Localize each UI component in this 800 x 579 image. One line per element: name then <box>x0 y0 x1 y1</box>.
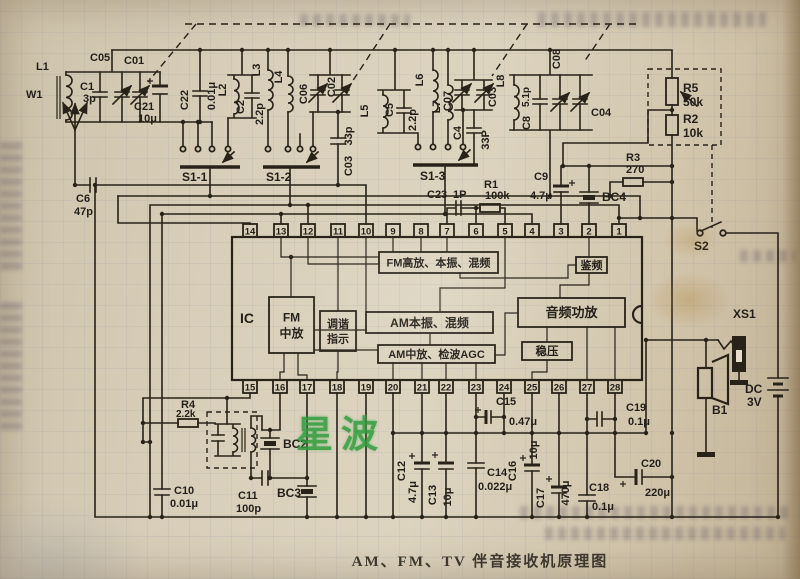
label-C12: C12 <box>396 461 408 481</box>
ic-pin-number: 10 <box>361 227 372 238</box>
label-W1: W1 <box>26 89 43 101</box>
ceramic-filter-BC2 <box>261 438 279 449</box>
label-R5v: 50k <box>683 95 703 109</box>
battery-symbol <box>768 378 788 396</box>
junction-dot <box>530 431 534 435</box>
polarity-marks <box>147 78 626 487</box>
junction-dot <box>670 431 674 435</box>
label-C23v: 1P <box>453 189 466 201</box>
junction-dot <box>613 431 617 435</box>
label-L8: L8 <box>495 75 507 88</box>
label-C9v: 4.7μ <box>530 190 552 202</box>
label-C17v: 470μ <box>560 480 572 505</box>
label-C5v: 2.2p <box>407 109 419 131</box>
label-C6: C6 <box>76 193 90 205</box>
label-C20v: 220μ <box>645 487 670 499</box>
ic-pin-number: 27 <box>582 383 593 394</box>
junction-dot <box>328 48 332 52</box>
junction-dot <box>73 183 77 187</box>
label-C8: C8 <box>521 116 533 130</box>
junction-dot <box>240 48 244 52</box>
ic-pin-number: 26 <box>554 383 565 394</box>
label-BC2: BC2 <box>283 437 307 451</box>
junction-dot <box>141 440 145 444</box>
ic-block-label: AM本振、混频 <box>390 315 469 330</box>
coil-detector-tank <box>233 428 238 452</box>
label-C10: C10 <box>174 485 194 497</box>
junction-dot <box>148 515 152 519</box>
label-R5: R5 <box>683 81 699 95</box>
label-L6: L6 <box>414 74 426 87</box>
junction-dot <box>444 515 448 519</box>
junction-dot <box>502 431 506 435</box>
label-C13: C13 <box>427 485 439 505</box>
ic-block-label: 鉴频 <box>580 258 603 272</box>
label-C15v: 0.47μ <box>509 416 537 428</box>
label-C17: C17 <box>535 488 547 508</box>
label-C14: C14 <box>487 467 508 479</box>
ic-pin-number: 14 <box>245 227 256 238</box>
ic-block-label: 调谐 <box>327 316 349 330</box>
ic-pin-number: 25 <box>527 383 538 394</box>
ic-pin-number: 22 <box>441 383 452 394</box>
junction-dot <box>474 515 478 519</box>
power-switch-S2 <box>697 222 726 236</box>
detector-coil-dashed-box <box>207 412 257 468</box>
junction-dot <box>474 415 478 419</box>
coil-L1-core <box>57 76 60 119</box>
label-C08: C08 <box>551 49 563 69</box>
ic-pin-number: 13 <box>276 227 287 238</box>
junction-dot <box>336 183 340 187</box>
label-L4: L4 <box>273 70 285 84</box>
junction-dots <box>73 48 780 519</box>
scanned-schematic-page: 1413121110987654321151617181920212223242… <box>0 0 800 579</box>
label-C22: C22 <box>179 90 191 110</box>
ic-pin-number: 1 <box>616 227 622 238</box>
label-C15: C15 <box>496 396 516 408</box>
junction-dot <box>670 108 674 112</box>
ic-pin-number: 12 <box>303 227 314 238</box>
ic-pin-number: 21 <box>417 383 428 394</box>
label-DCv: 3V <box>747 395 762 409</box>
ceramic-filter-BC4 <box>580 192 598 203</box>
junction-dot <box>198 120 202 124</box>
ground-bar <box>697 452 715 457</box>
label-L2: L2 <box>217 84 229 97</box>
label-R3: R3 <box>626 152 640 164</box>
label-C9: C9 <box>534 171 548 183</box>
junction-dot <box>148 440 152 444</box>
junction-dot <box>613 417 617 421</box>
label-C03b: C03 <box>487 87 499 107</box>
label-C4v: 33P <box>480 130 492 150</box>
ic-pin-number: 2 <box>586 227 591 238</box>
junction-dot <box>160 515 164 519</box>
coil-detector-secondary <box>251 428 256 452</box>
junction-dot <box>670 180 674 184</box>
detector-core <box>242 428 245 452</box>
ic-pin-number: 23 <box>471 383 482 394</box>
junction-dot <box>431 48 435 52</box>
label-C4: C4 <box>452 125 464 140</box>
label-C19: C19 <box>626 402 646 414</box>
junction-dot <box>335 515 339 519</box>
junction-dot <box>393 48 397 52</box>
junction-dot <box>644 338 648 342</box>
ic-block-label: 稳压 <box>536 344 559 358</box>
label-C6v: 47p <box>74 206 93 218</box>
wire-network <box>66 50 778 517</box>
junction-dot <box>391 431 395 435</box>
antenna-symbol <box>63 103 87 130</box>
ic-pin-number: 5 <box>502 227 508 238</box>
junction-dot <box>704 338 708 342</box>
label-C23: C23 <box>427 189 447 201</box>
junction-dot <box>670 515 674 519</box>
ic-pin-number: 9 <box>390 227 395 238</box>
ic-block-label: 指示 <box>327 331 349 345</box>
resistor-R2 <box>666 115 678 135</box>
ic-pin-number: 28 <box>610 383 621 394</box>
junction-dot <box>585 431 589 435</box>
junction-dot <box>181 120 185 124</box>
label-S1-2: S1-2 <box>266 170 292 184</box>
junction-dot <box>279 212 283 216</box>
label-C10v: 0.01μ <box>170 498 198 510</box>
junction-dot <box>364 515 368 519</box>
junction-dot <box>502 415 506 419</box>
junction-dot <box>776 515 780 519</box>
resistor-R4 <box>178 419 198 427</box>
junction-dot <box>420 431 424 435</box>
label-BC4: BC4 <box>602 190 626 204</box>
label-C07: C07 <box>442 91 454 111</box>
label-R4v: 2.2k <box>176 409 196 420</box>
label-C1v: 3p <box>83 93 96 105</box>
junction-dot <box>306 203 310 207</box>
ic-pin-number: 17 <box>302 383 313 394</box>
junction-dot <box>420 515 424 519</box>
junction-dot <box>444 431 448 435</box>
junction-dot <box>198 48 202 52</box>
label-C01: C01 <box>124 55 144 67</box>
ic-pin-number: 15 <box>245 383 256 394</box>
label-R2: R2 <box>683 112 699 126</box>
label-S1-1: S1-1 <box>182 170 208 184</box>
label-C18: C18 <box>589 482 609 494</box>
ic-block-label: FM <box>283 310 300 324</box>
resistor-R3 <box>623 178 643 186</box>
junction-dot <box>93 183 97 187</box>
junction-dot <box>530 515 534 519</box>
junction-dot <box>474 206 478 210</box>
label-C13v: 10μ <box>442 488 454 507</box>
label-C8v: 5.1p <box>521 87 532 107</box>
junction-dot <box>561 164 565 168</box>
label-C02: C02 <box>326 77 338 97</box>
label-C16: C16 <box>507 461 519 481</box>
component-labels: W1L1C13pC05C01C2110μC220.01μL2C22.2pC647… <box>26 49 763 515</box>
junction-dot <box>225 396 229 400</box>
label-C2: C2 <box>235 100 247 114</box>
junction-dot <box>446 48 450 52</box>
band-switch-S1-3 <box>413 144 478 165</box>
label-C20: C20 <box>641 458 661 470</box>
junction-dot <box>288 203 292 207</box>
junction-dot <box>644 431 648 435</box>
junction-dot <box>141 421 145 425</box>
ic-pin-number: 16 <box>275 383 286 394</box>
label-C14v: 0.022μ <box>478 481 512 493</box>
ic-function-blocks: FM高放、本振、混频AM本振、混频AM中放、检波AGCFM中放调谐指示鉴频音频功… <box>269 252 625 363</box>
label-R3v: 270 <box>626 164 644 176</box>
junction-dot <box>286 48 290 52</box>
label-S1-3: S1-3 <box>420 169 446 183</box>
ic-pin-number: 6 <box>473 227 478 238</box>
junction-dot <box>585 417 589 421</box>
junction-dot <box>268 428 272 432</box>
label-C18v: 0.1μ <box>592 501 614 513</box>
label-S2: S2 <box>694 239 709 253</box>
ic-block-label: FM高放、本振、混频 <box>387 255 491 269</box>
label-C03a-v: 33p <box>343 126 355 145</box>
ic-pin-number: 3 <box>558 227 563 238</box>
label-C05: C05 <box>90 52 110 64</box>
ic-pin-number: 24 <box>499 383 510 394</box>
caption: AM、FM、TV 伴音接收机原理图 <box>240 550 720 571</box>
coil-L4 <box>288 76 293 112</box>
junction-dot <box>443 212 447 216</box>
junction-dot <box>585 515 589 519</box>
label-L3: L3 <box>251 64 263 77</box>
ic-block-label: 中放 <box>279 325 304 340</box>
label-R1v: 100k <box>485 190 510 202</box>
ic-pin-number: 4 <box>529 227 535 238</box>
junction-dot <box>557 431 561 435</box>
label-C5: C5 <box>384 103 396 117</box>
ic-pin-number: 19 <box>361 383 372 394</box>
band-switch-S1-2 <box>263 146 320 167</box>
label-C11: C11 <box>238 490 258 502</box>
junction-dot <box>249 476 253 480</box>
label-C03a: C03 <box>343 156 355 176</box>
label-C21: C21 <box>134 101 154 113</box>
junction-dot <box>305 476 309 480</box>
junction-dot <box>617 216 621 220</box>
label-C06: C06 <box>298 84 310 104</box>
label-BC3: BC3 <box>277 486 301 500</box>
junction-dot <box>305 515 309 519</box>
coil-L8 <box>514 85 519 120</box>
junction-dot <box>461 108 465 112</box>
schematic-canvas: 1413121110987654321151617181920212223242… <box>0 0 800 579</box>
label-IC: IC <box>240 310 254 326</box>
label-C11v: 100p <box>236 503 261 515</box>
junction-dot <box>391 515 395 519</box>
resistor-R5 <box>666 78 678 105</box>
ic-notch <box>633 306 642 323</box>
junction-dot <box>587 164 591 168</box>
ic-pin-number: 7 <box>444 227 449 238</box>
label-DC: DC <box>745 382 763 396</box>
junction-dot <box>557 515 561 519</box>
label-XS1: XS1 <box>733 307 756 321</box>
ic-pin-number: 20 <box>388 383 399 394</box>
junction-dot <box>472 48 476 52</box>
label-C2v: 2.2p <box>254 103 266 125</box>
junction-dot <box>336 110 340 114</box>
junction-dot <box>266 48 270 52</box>
junction-dot <box>670 164 674 168</box>
label-C19v: 0.1μ <box>628 416 650 428</box>
junction-dot <box>638 216 642 220</box>
label-C04: C04 <box>591 107 612 119</box>
speaker-symbol <box>698 355 728 404</box>
label-C21v: 10μ <box>138 113 157 125</box>
junction-dot <box>474 431 478 435</box>
earphone-jack-symbol <box>718 336 748 385</box>
label-B1: B1 <box>712 403 728 417</box>
junction-dot <box>268 476 272 480</box>
junction-dot <box>670 475 674 479</box>
ic-pin-number: 8 <box>418 227 423 238</box>
label-C12v: 4.7μ <box>407 481 419 503</box>
label-R2v: 10k <box>683 126 703 140</box>
ic-block-label: AM中放、检波AGC <box>388 347 485 361</box>
band-switch-S1-1 <box>180 146 240 167</box>
label-L1: L1 <box>36 61 49 73</box>
junction-dot <box>160 212 164 216</box>
ic-block-label: 音频功放 <box>545 305 598 320</box>
junction-dot <box>208 194 212 198</box>
ic-pin-number: 18 <box>332 383 343 394</box>
junction-dot <box>670 216 674 220</box>
label-C16v: 10μ <box>528 441 540 460</box>
label-C1: C1 <box>80 81 94 93</box>
ic-pin-number: 11 <box>333 227 344 238</box>
label-L5: L5 <box>359 105 371 118</box>
ic-block-fm-if <box>269 297 314 353</box>
junction-dot <box>289 255 293 259</box>
